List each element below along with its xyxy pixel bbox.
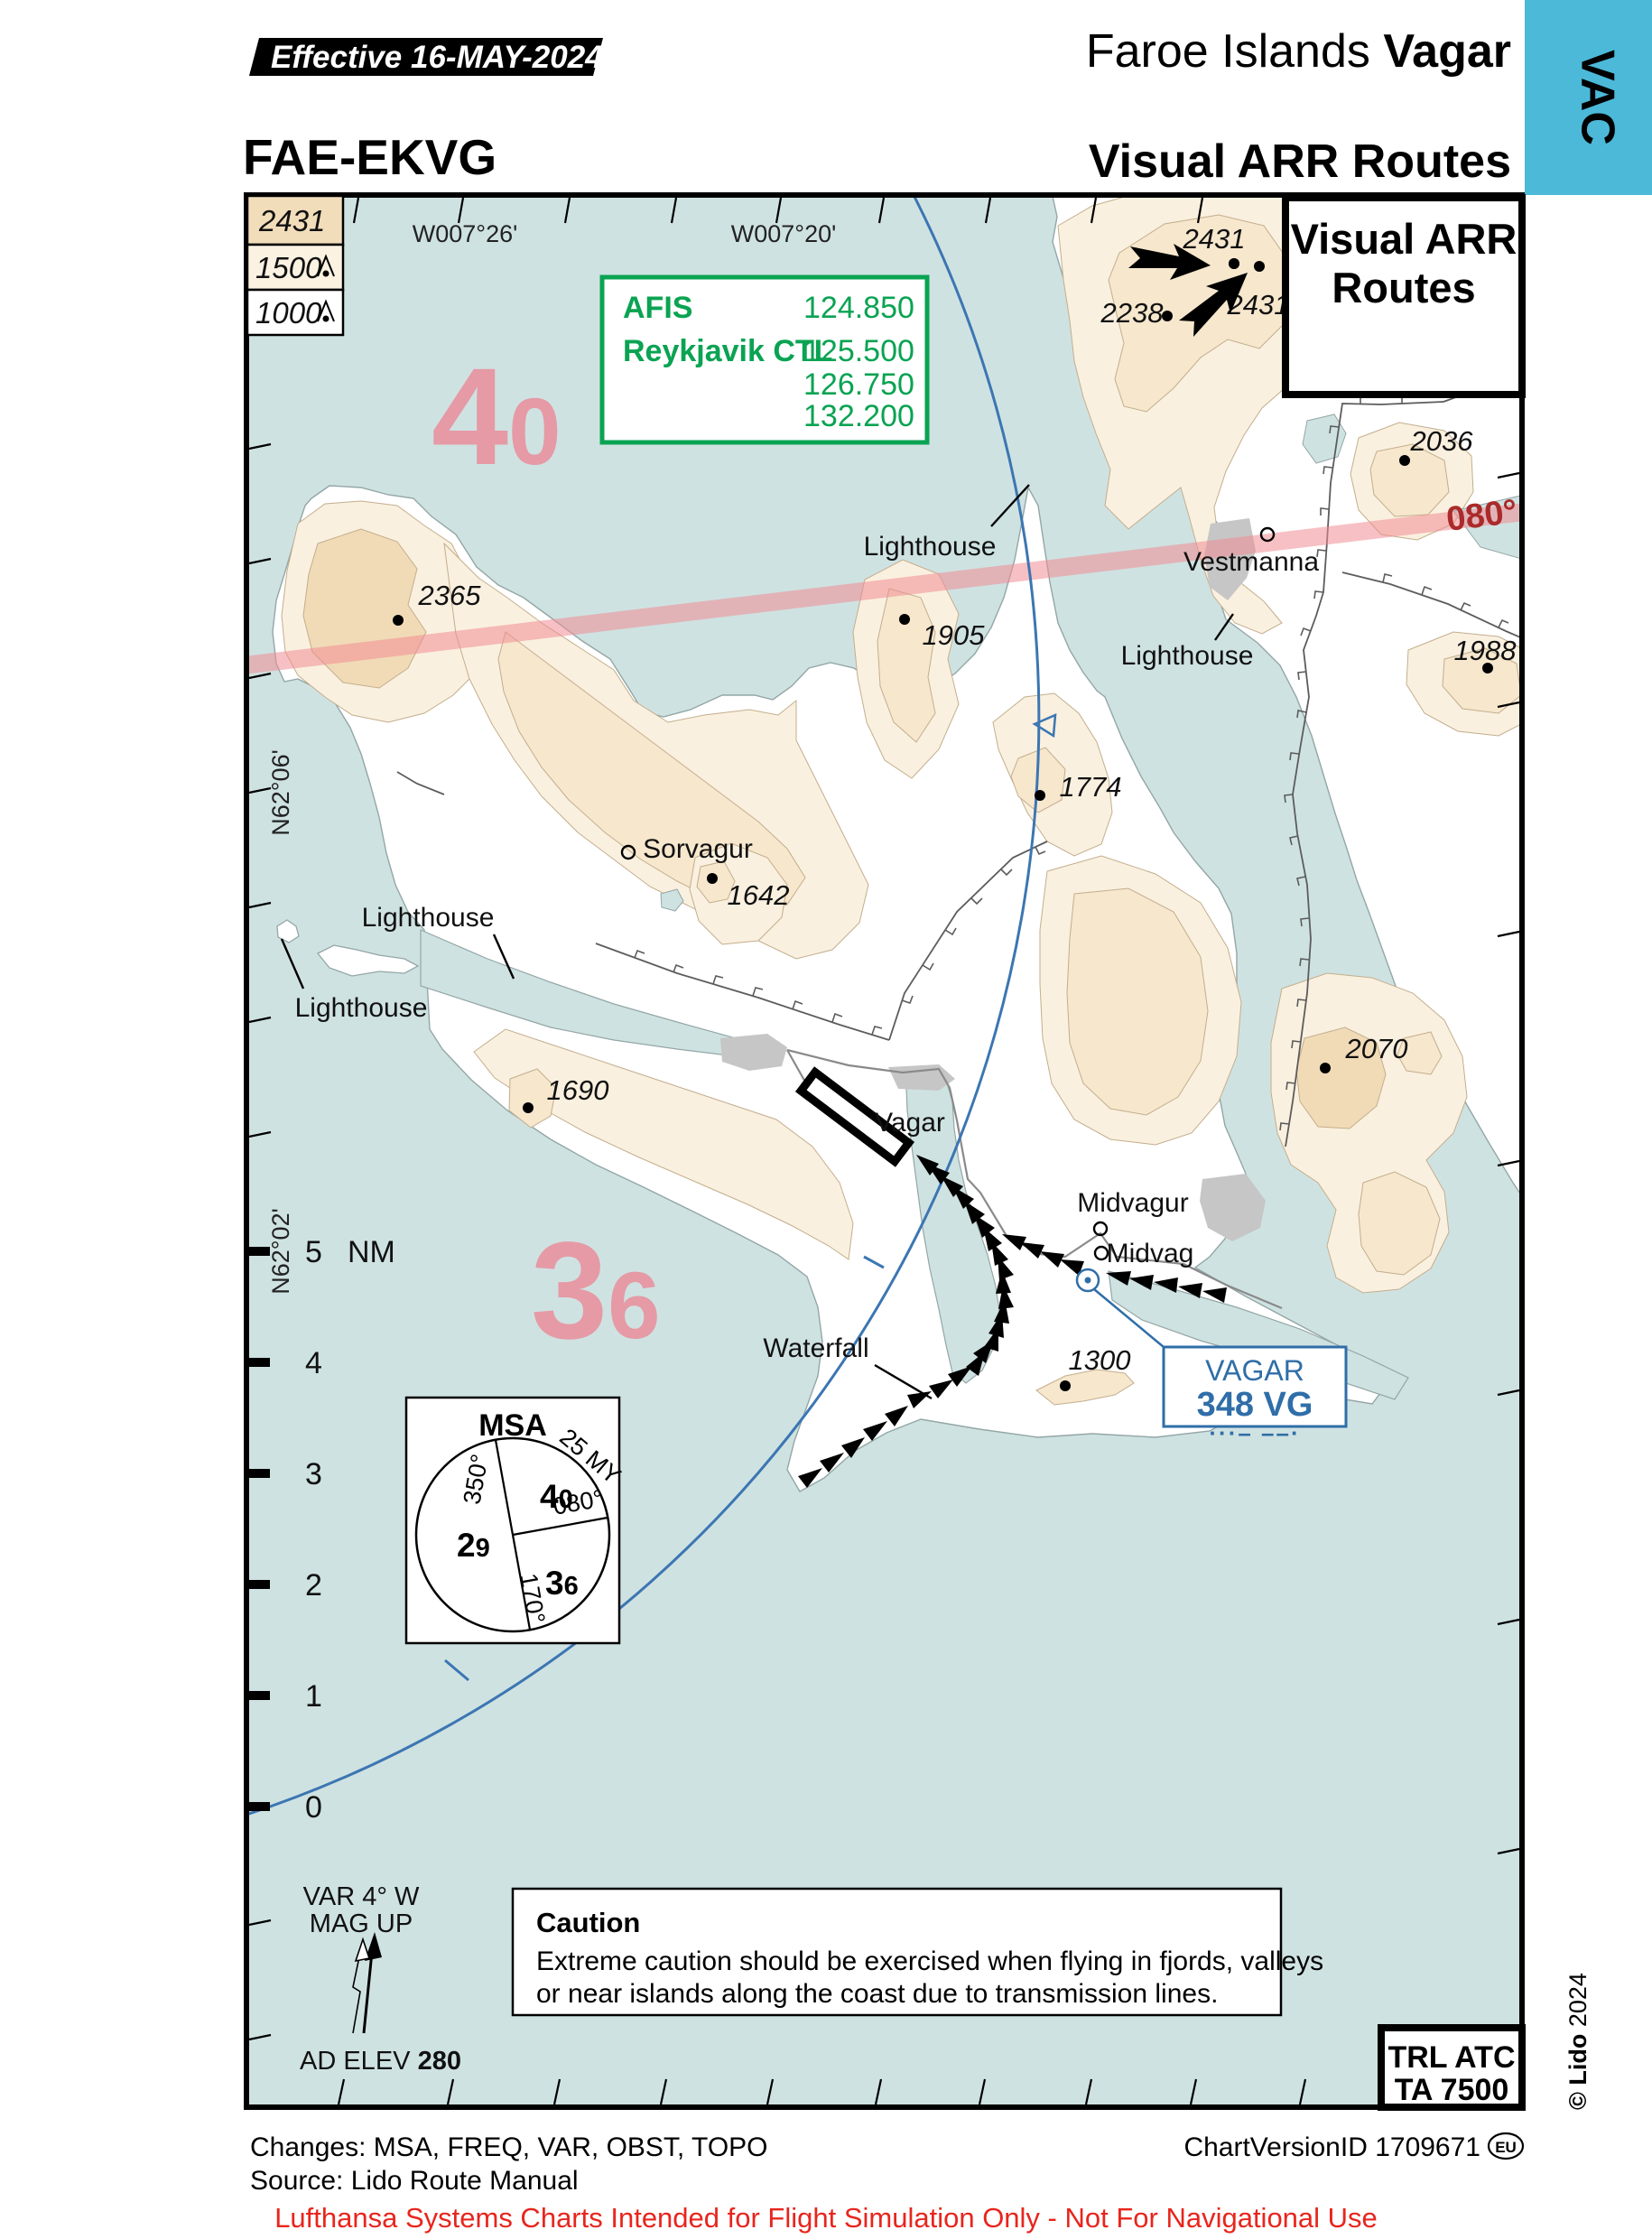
svg-text:Visual ARR: Visual ARR (1291, 215, 1517, 263)
svg-text:N62°02': N62°02' (267, 1208, 294, 1295)
svg-text:W007°20': W007°20' (731, 220, 837, 247)
svg-text:Midvagur: Midvagur (1077, 1188, 1188, 1218)
svg-text:1988: 1988 (1454, 635, 1517, 666)
svg-text:Faroe Islands Vagar: Faroe Islands Vagar (1086, 25, 1511, 78)
svg-text:126.750: 126.750 (803, 367, 914, 402)
svg-text:Lighthouse: Lighthouse (864, 532, 997, 562)
svg-text:2431: 2431 (1183, 223, 1246, 255)
svg-text:Sorvagur: Sorvagur (643, 834, 753, 864)
svg-text:EU: EU (1495, 2139, 1517, 2156)
svg-text:1500: 1500 (255, 251, 322, 284)
svg-text:Effective 16-MAY-2024: Effective 16-MAY-2024 (271, 40, 603, 75)
svg-text:VAGAR: VAGAR (1205, 1354, 1304, 1387)
svg-text:Vestmanna: Vestmanna (1183, 547, 1319, 577)
svg-text:2431: 2431 (258, 204, 325, 237)
svg-text:N62°06': N62°06' (267, 749, 294, 836)
svg-text:1: 1 (305, 1679, 322, 1714)
svg-text:1905: 1905 (923, 619, 986, 651)
svg-text:W007°26': W007°26' (413, 220, 518, 247)
svg-text:1642: 1642 (728, 879, 790, 911)
svg-text:Source: Lido Route Manual: Source: Lido Route Manual (250, 2166, 579, 2196)
svg-text:Lighthouse: Lighthouse (295, 993, 428, 1023)
svg-text:VAC: VAC (1571, 50, 1623, 145)
svg-text:2365: 2365 (418, 580, 482, 611)
svg-text:Lighthouse: Lighthouse (362, 903, 495, 933)
svg-text:125.500: 125.500 (803, 334, 914, 368)
svg-text:NM: NM (348, 1235, 395, 1269)
svg-text:0: 0 (305, 1790, 322, 1825)
svg-text:2070: 2070 (1345, 1033, 1408, 1064)
svg-text:FAE-EKVG: FAE-EKVG (243, 129, 497, 185)
svg-text:ChartVersionID 1709671: ChartVersionID 1709671 (1183, 2132, 1480, 2162)
svg-text:Visual ARR Routes: Visual ARR Routes (1089, 135, 1511, 188)
svg-text:1000: 1000 (255, 296, 322, 330)
svg-text:AFIS: AFIS (623, 291, 692, 325)
svg-text:Lighthouse: Lighthouse (1121, 641, 1254, 671)
svg-text:Reykjavik CTL: Reykjavik CTL (623, 334, 832, 368)
svg-text:4: 4 (305, 1346, 322, 1380)
svg-text:Midvag: Midvag (1107, 1239, 1194, 1268)
svg-text:Routes: Routes (1332, 264, 1475, 311)
svg-text:132.200: 132.200 (803, 399, 914, 433)
svg-text:124.850: 124.850 (803, 291, 914, 325)
svg-text:Vagar: Vagar (875, 1108, 945, 1138)
svg-text:2238: 2238 (1100, 297, 1165, 329)
svg-text:348 VG: 348 VG (1197, 1386, 1313, 1424)
svg-text:VAR 4° W: VAR 4° W (303, 1882, 420, 1911)
svg-text:1300: 1300 (1069, 1344, 1131, 1376)
svg-text:© Lido 2024: © Lido 2024 (1564, 1973, 1592, 2110)
svg-text:5: 5 (305, 1235, 322, 1269)
svg-text:TA 7500: TA 7500 (1395, 2073, 1509, 2107)
svg-text:1690: 1690 (547, 1074, 609, 1106)
svg-text:Extreme caution should be exer: Extreme caution should be exercised when… (536, 1946, 1323, 1976)
svg-text:Waterfall: Waterfall (763, 1333, 868, 1363)
svg-text:AD ELEV 280: AD ELEV 280 (300, 2047, 461, 2076)
svg-text:Lufthansa Systems Charts Inten: Lufthansa Systems Charts Intended for Fl… (274, 2202, 1378, 2234)
svg-text:2036: 2036 (1410, 425, 1474, 457)
svg-text:···– ––·: ···– ––· (1209, 1419, 1300, 1446)
svg-text:or near islands along the coas: or near islands along the coast due to t… (536, 1979, 1218, 2009)
svg-text:TRL ATC: TRL ATC (1387, 2040, 1515, 2075)
svg-text:3: 3 (305, 1457, 322, 1491)
svg-text:MAG UP: MAG UP (310, 1909, 413, 1938)
svg-text:2: 2 (305, 1568, 322, 1603)
svg-text:1774: 1774 (1060, 771, 1122, 803)
svg-text:Caution: Caution (536, 1907, 640, 1938)
svg-text:Changes: MSA, FREQ, VAR, OBST,: Changes: MSA, FREQ, VAR, OBST, TOPO (250, 2132, 768, 2162)
